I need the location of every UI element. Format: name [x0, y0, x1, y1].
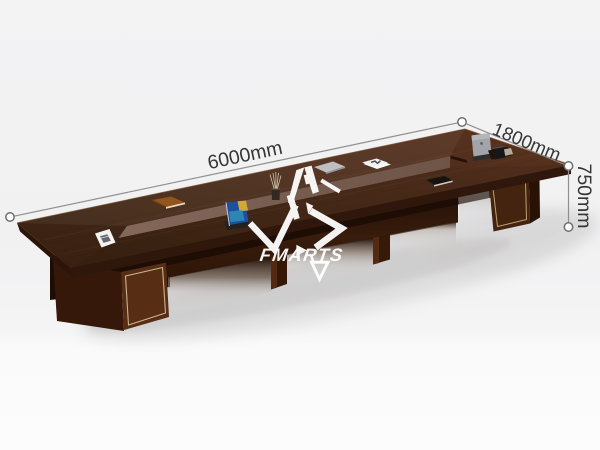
svg-text:6000mm: 6000mm	[206, 137, 285, 174]
svg-text:750mm: 750mm	[573, 163, 595, 228]
svg-text:FMARTS: FMARTS	[259, 245, 345, 265]
